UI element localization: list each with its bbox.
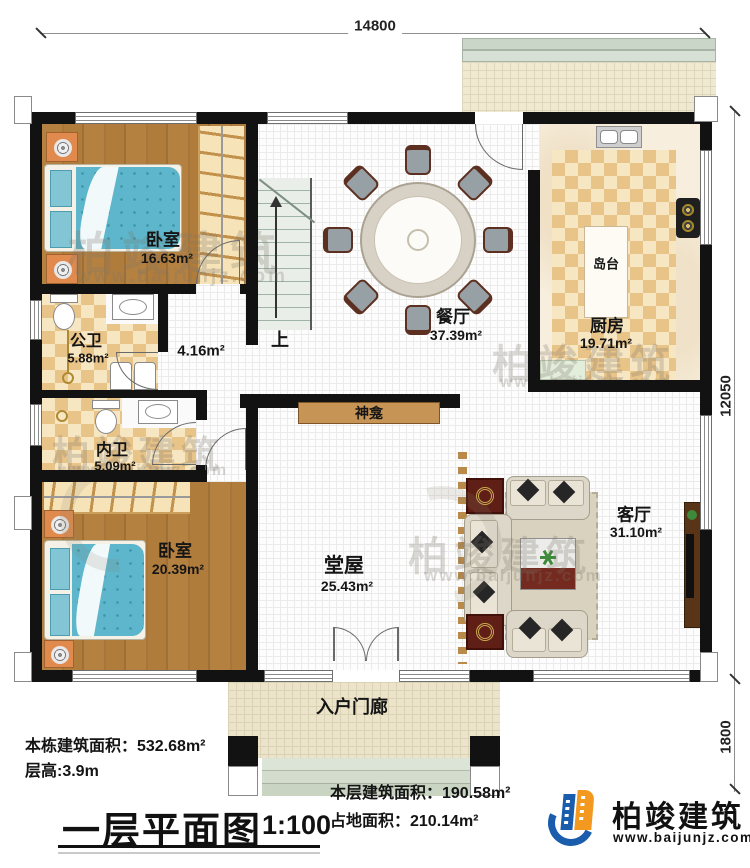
- nightstand: [44, 510, 74, 538]
- room-area-dining: 37.39m²: [430, 328, 482, 342]
- room-label-bedroom-top: 卧室: [146, 232, 180, 249]
- kitchen-sink: [596, 126, 642, 148]
- room-area-public-bath: 5.88m²: [67, 352, 108, 365]
- plan-title-underline-shadow: [58, 852, 320, 854]
- wall-segment: [158, 292, 168, 352]
- room-label-living: 客厅: [617, 507, 651, 524]
- tv: [686, 534, 694, 598]
- shrine-label: 神龛: [355, 406, 383, 420]
- room-area-living: 31.10m²: [610, 525, 662, 539]
- nightstand: [46, 254, 78, 284]
- window: [700, 150, 712, 245]
- sink-basin: [620, 130, 638, 144]
- plant-pot: [687, 510, 697, 520]
- room-label-kitchen: 厨房: [590, 318, 624, 335]
- note-building-area: 本栋建筑面积：532.68m²: [25, 732, 206, 756]
- room-area-bedroom-bottom: 20.39m²: [152, 562, 204, 576]
- room-label-dining: 餐厅: [436, 309, 470, 326]
- porch-label: 入户门廊: [316, 698, 388, 716]
- stove: [676, 198, 700, 238]
- wall-segment: [196, 390, 207, 420]
- pilaster: [14, 496, 32, 530]
- note-footprint-area: 占地面积：210.14m²: [330, 807, 479, 831]
- plan-scale: 1:100: [262, 810, 331, 841]
- bed-pillow: [50, 548, 70, 590]
- dim-tick: [729, 673, 740, 684]
- nightstand: [44, 640, 74, 668]
- sink-basin: [600, 130, 618, 144]
- room-area-main-hall: 25.43m²: [321, 579, 373, 593]
- toilet-bowl: [53, 303, 75, 330]
- room-label-inner-bath: 内卫: [96, 443, 128, 459]
- note-floor-area: 本层建筑面积：190.58m²: [330, 779, 511, 803]
- window: [264, 670, 333, 682]
- lamp: [51, 646, 69, 664]
- dining-chair: [483, 227, 513, 253]
- logo-tower-windows: [579, 796, 585, 824]
- porch-pier-base: [228, 766, 258, 796]
- logo-tower-windows: [564, 800, 570, 824]
- room-area-kitchen: 19.71m²: [580, 336, 632, 350]
- wall-segment: [528, 170, 540, 392]
- brand-site: www.baijunjz.com: [613, 830, 750, 845]
- room-area-bedroom-top: 16.63m²: [141, 251, 193, 265]
- shower-head: [56, 410, 68, 422]
- window: [75, 112, 197, 124]
- toilet: [92, 400, 120, 409]
- window: [700, 415, 712, 530]
- room-label-public-bath: 公卫: [70, 334, 102, 350]
- shower-head: [62, 372, 74, 384]
- bed-pillow: [50, 211, 72, 248]
- window: [399, 670, 470, 682]
- side-table: [466, 478, 504, 514]
- pantry-cell: [540, 360, 586, 380]
- medallion: [476, 623, 494, 641]
- bed-pillow: [50, 170, 72, 207]
- window: [72, 670, 197, 682]
- wall-segment: [348, 112, 475, 124]
- wall-segment: [523, 112, 712, 124]
- burner: [681, 203, 695, 217]
- wall-segment: [30, 390, 207, 398]
- sink-basin: [119, 299, 147, 315]
- room-area-inner-bath: 5.09m²: [94, 460, 135, 473]
- toilet-bowl: [95, 409, 117, 434]
- pilaster: [694, 96, 718, 122]
- window: [533, 670, 690, 682]
- bed-pillow: [50, 594, 70, 636]
- room-label-bedroom-bottom: 卧室: [158, 543, 192, 560]
- coffee-table: [520, 538, 576, 590]
- island-label: 岛台: [593, 258, 619, 271]
- window: [30, 404, 42, 446]
- burner: [681, 219, 695, 233]
- stairs-up-label: 上: [271, 331, 289, 349]
- toilet: [50, 294, 78, 303]
- nightstand: [46, 132, 78, 162]
- wall-segment: [30, 284, 196, 294]
- wall-segment: [240, 284, 258, 294]
- room-label-main-hall: 堂屋: [324, 556, 364, 576]
- lamp: [51, 516, 69, 534]
- dining-chair: [405, 145, 431, 175]
- side-table: [466, 614, 504, 650]
- lamp: [54, 139, 72, 157]
- pilaster: [700, 652, 718, 682]
- stair-arrow-head: [270, 196, 282, 207]
- dim-tick: [729, 105, 740, 116]
- pilaster: [14, 652, 32, 682]
- dim-line-right: [734, 112, 735, 792]
- wall-segment: [470, 670, 533, 682]
- pilaster: [14, 96, 32, 124]
- porch-pier: [470, 736, 500, 766]
- dim-top-label: 14800: [348, 18, 402, 35]
- brand-logo: [548, 788, 606, 848]
- terrace-step: [462, 38, 716, 50]
- porch-pier: [228, 736, 258, 766]
- plan-title-underline: [58, 845, 320, 848]
- dining-table-hub: [407, 229, 429, 251]
- wall-segment: [246, 394, 258, 682]
- kitchen-island: [584, 226, 628, 318]
- stair-arrow: [275, 206, 277, 318]
- dim-right-main-label: 12050: [718, 375, 735, 417]
- porch-floor: [228, 682, 500, 758]
- sink-basin: [145, 404, 171, 419]
- corridor-area: 4.16m²: [177, 344, 225, 359]
- lamp: [54, 261, 72, 279]
- wall-segment: [528, 380, 712, 392]
- wall-segment: [246, 112, 258, 345]
- window: [267, 112, 348, 124]
- floor-plan: 柏竣建筑 www.baijunjz.com 柏竣建筑 www.baijunjz.…: [0, 0, 750, 868]
- dining-chair: [323, 227, 353, 253]
- note-floor-height: 层高:3.9m: [25, 757, 99, 781]
- logo-tower-orange: [574, 790, 594, 830]
- window: [30, 300, 42, 340]
- terrace-step: [462, 50, 716, 62]
- dining-chair: [405, 305, 431, 335]
- dim-right-porch-label: 1800: [718, 720, 735, 753]
- wall-segment: [30, 112, 42, 300]
- medallion: [476, 487, 494, 505]
